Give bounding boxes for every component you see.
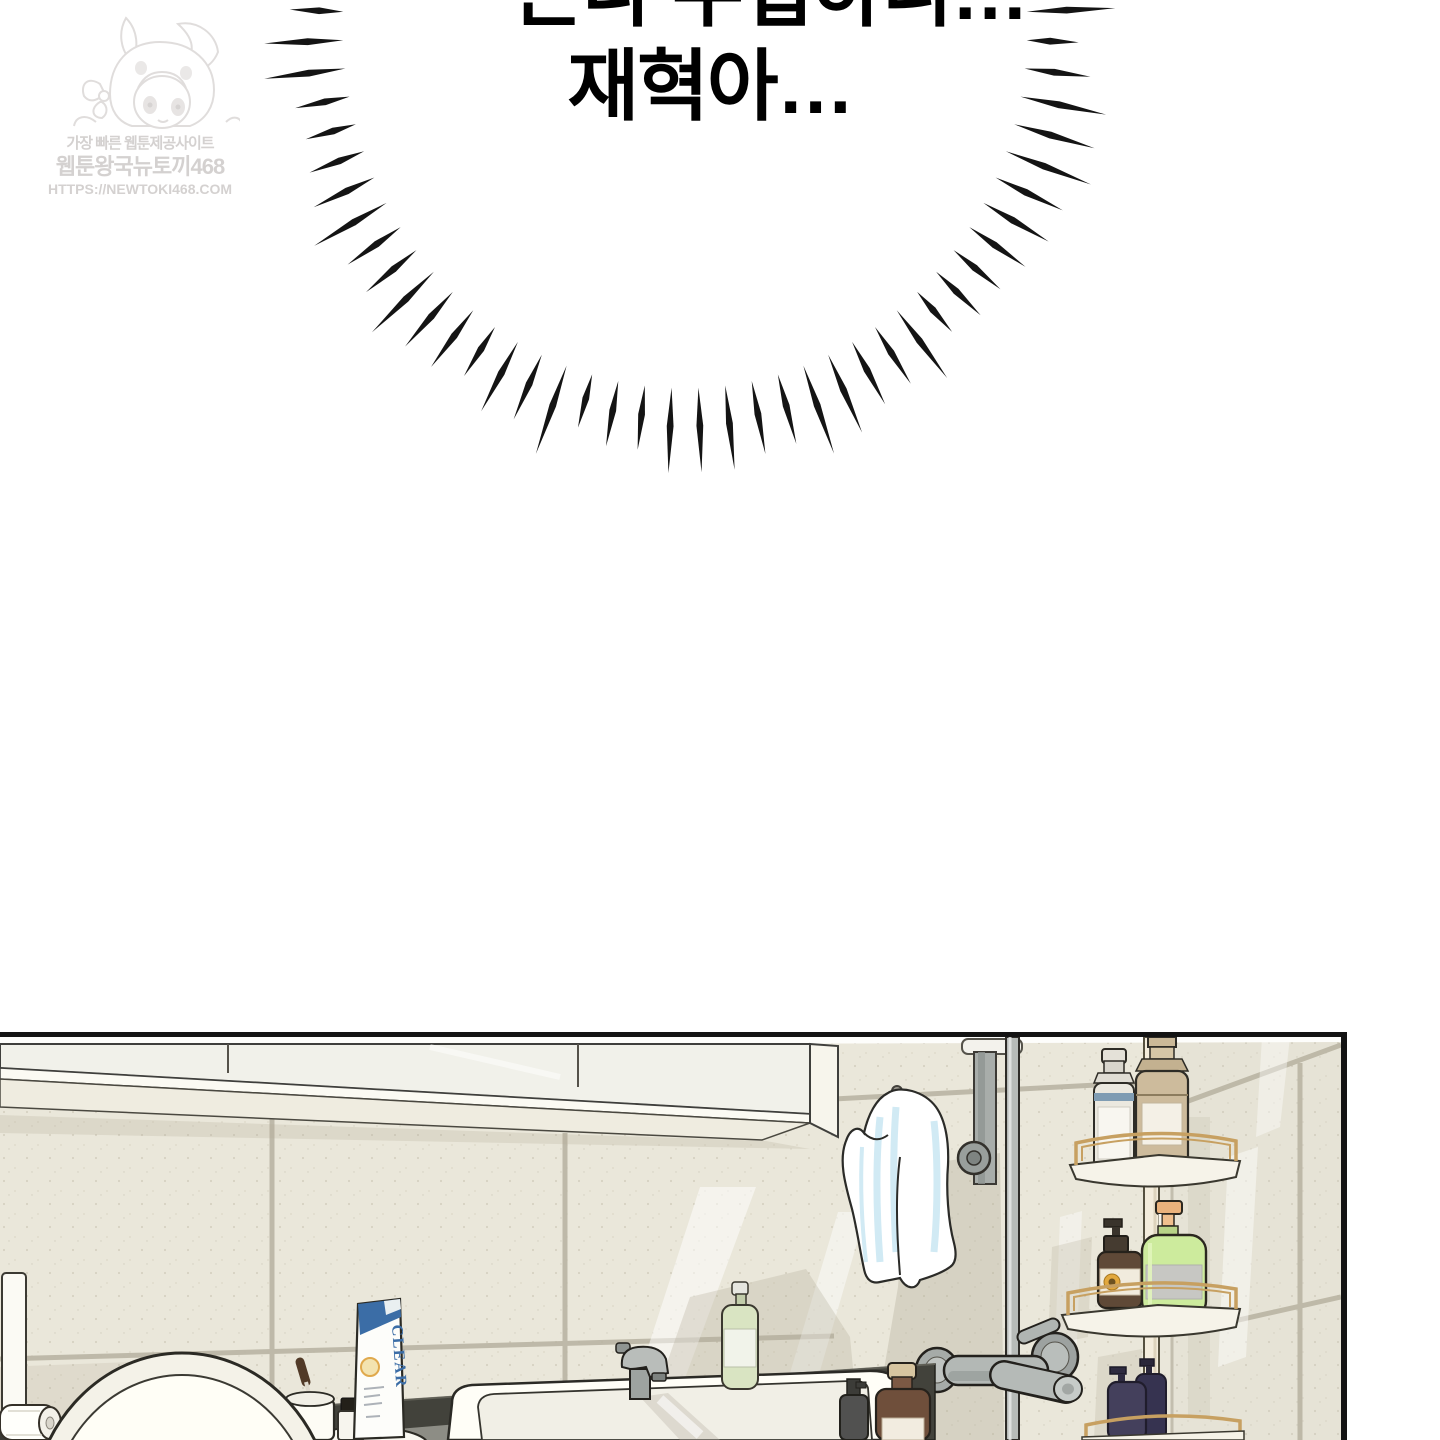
burst-spike xyxy=(969,227,1025,267)
burst-spike xyxy=(996,178,1063,211)
burst-spike xyxy=(778,374,797,443)
burst-spike xyxy=(366,250,416,292)
burst-spike xyxy=(264,38,343,45)
burst-spike xyxy=(936,272,980,316)
burst-spike xyxy=(1006,151,1091,184)
watermark-tagline: 가장 빠른 웹툰제공사이트 xyxy=(38,135,242,154)
burst-spike xyxy=(725,385,734,469)
burst-spike xyxy=(954,250,1001,289)
burst-spike xyxy=(638,385,645,449)
toothbrush xyxy=(300,1362,306,1382)
burst-spike xyxy=(314,178,375,208)
burst-spike xyxy=(514,355,542,420)
burst-spike xyxy=(536,366,567,454)
burst-spike xyxy=(875,327,911,384)
burst-spike xyxy=(481,342,518,411)
stand-pole xyxy=(2,1273,26,1425)
burst-spike xyxy=(667,388,674,473)
burst-spike xyxy=(696,388,703,473)
burst-spike xyxy=(917,292,952,332)
burst-spike xyxy=(405,292,453,347)
burst-spike xyxy=(983,203,1048,242)
burst-spike xyxy=(431,310,473,367)
burst-spike xyxy=(464,327,495,376)
burst-spike xyxy=(852,342,885,404)
speech-text-line2: 재혁아… xyxy=(25,46,1395,128)
burst-spike xyxy=(372,272,434,333)
burst-spike xyxy=(828,355,862,433)
burst-spike xyxy=(606,381,618,446)
burst-spike xyxy=(314,203,386,246)
burst-spike xyxy=(348,227,401,265)
watermark-site-name: 웹툰왕국뉴토끼468 xyxy=(38,154,242,180)
toothpaste-tube: CLEAR xyxy=(354,1299,409,1439)
burst-spike xyxy=(803,366,834,454)
burst-spike xyxy=(897,310,947,378)
burst-spike xyxy=(1027,38,1079,45)
watermark-url: HTTPS://NEWTOKI468.COM xyxy=(38,180,242,198)
comic-panel-bathroom: CLEAR xyxy=(0,1032,1347,1440)
speech-text-line1: 존나 주접하니… xyxy=(85,0,1440,34)
burst-spike xyxy=(310,151,365,172)
burst-spike xyxy=(578,374,592,427)
burst-spike xyxy=(752,381,766,454)
webtoon-page: 가장 빠른 웹툰제공사이트 웹툰왕국뉴토끼468 HTTPS://NEWTOKI… xyxy=(0,0,1440,1440)
